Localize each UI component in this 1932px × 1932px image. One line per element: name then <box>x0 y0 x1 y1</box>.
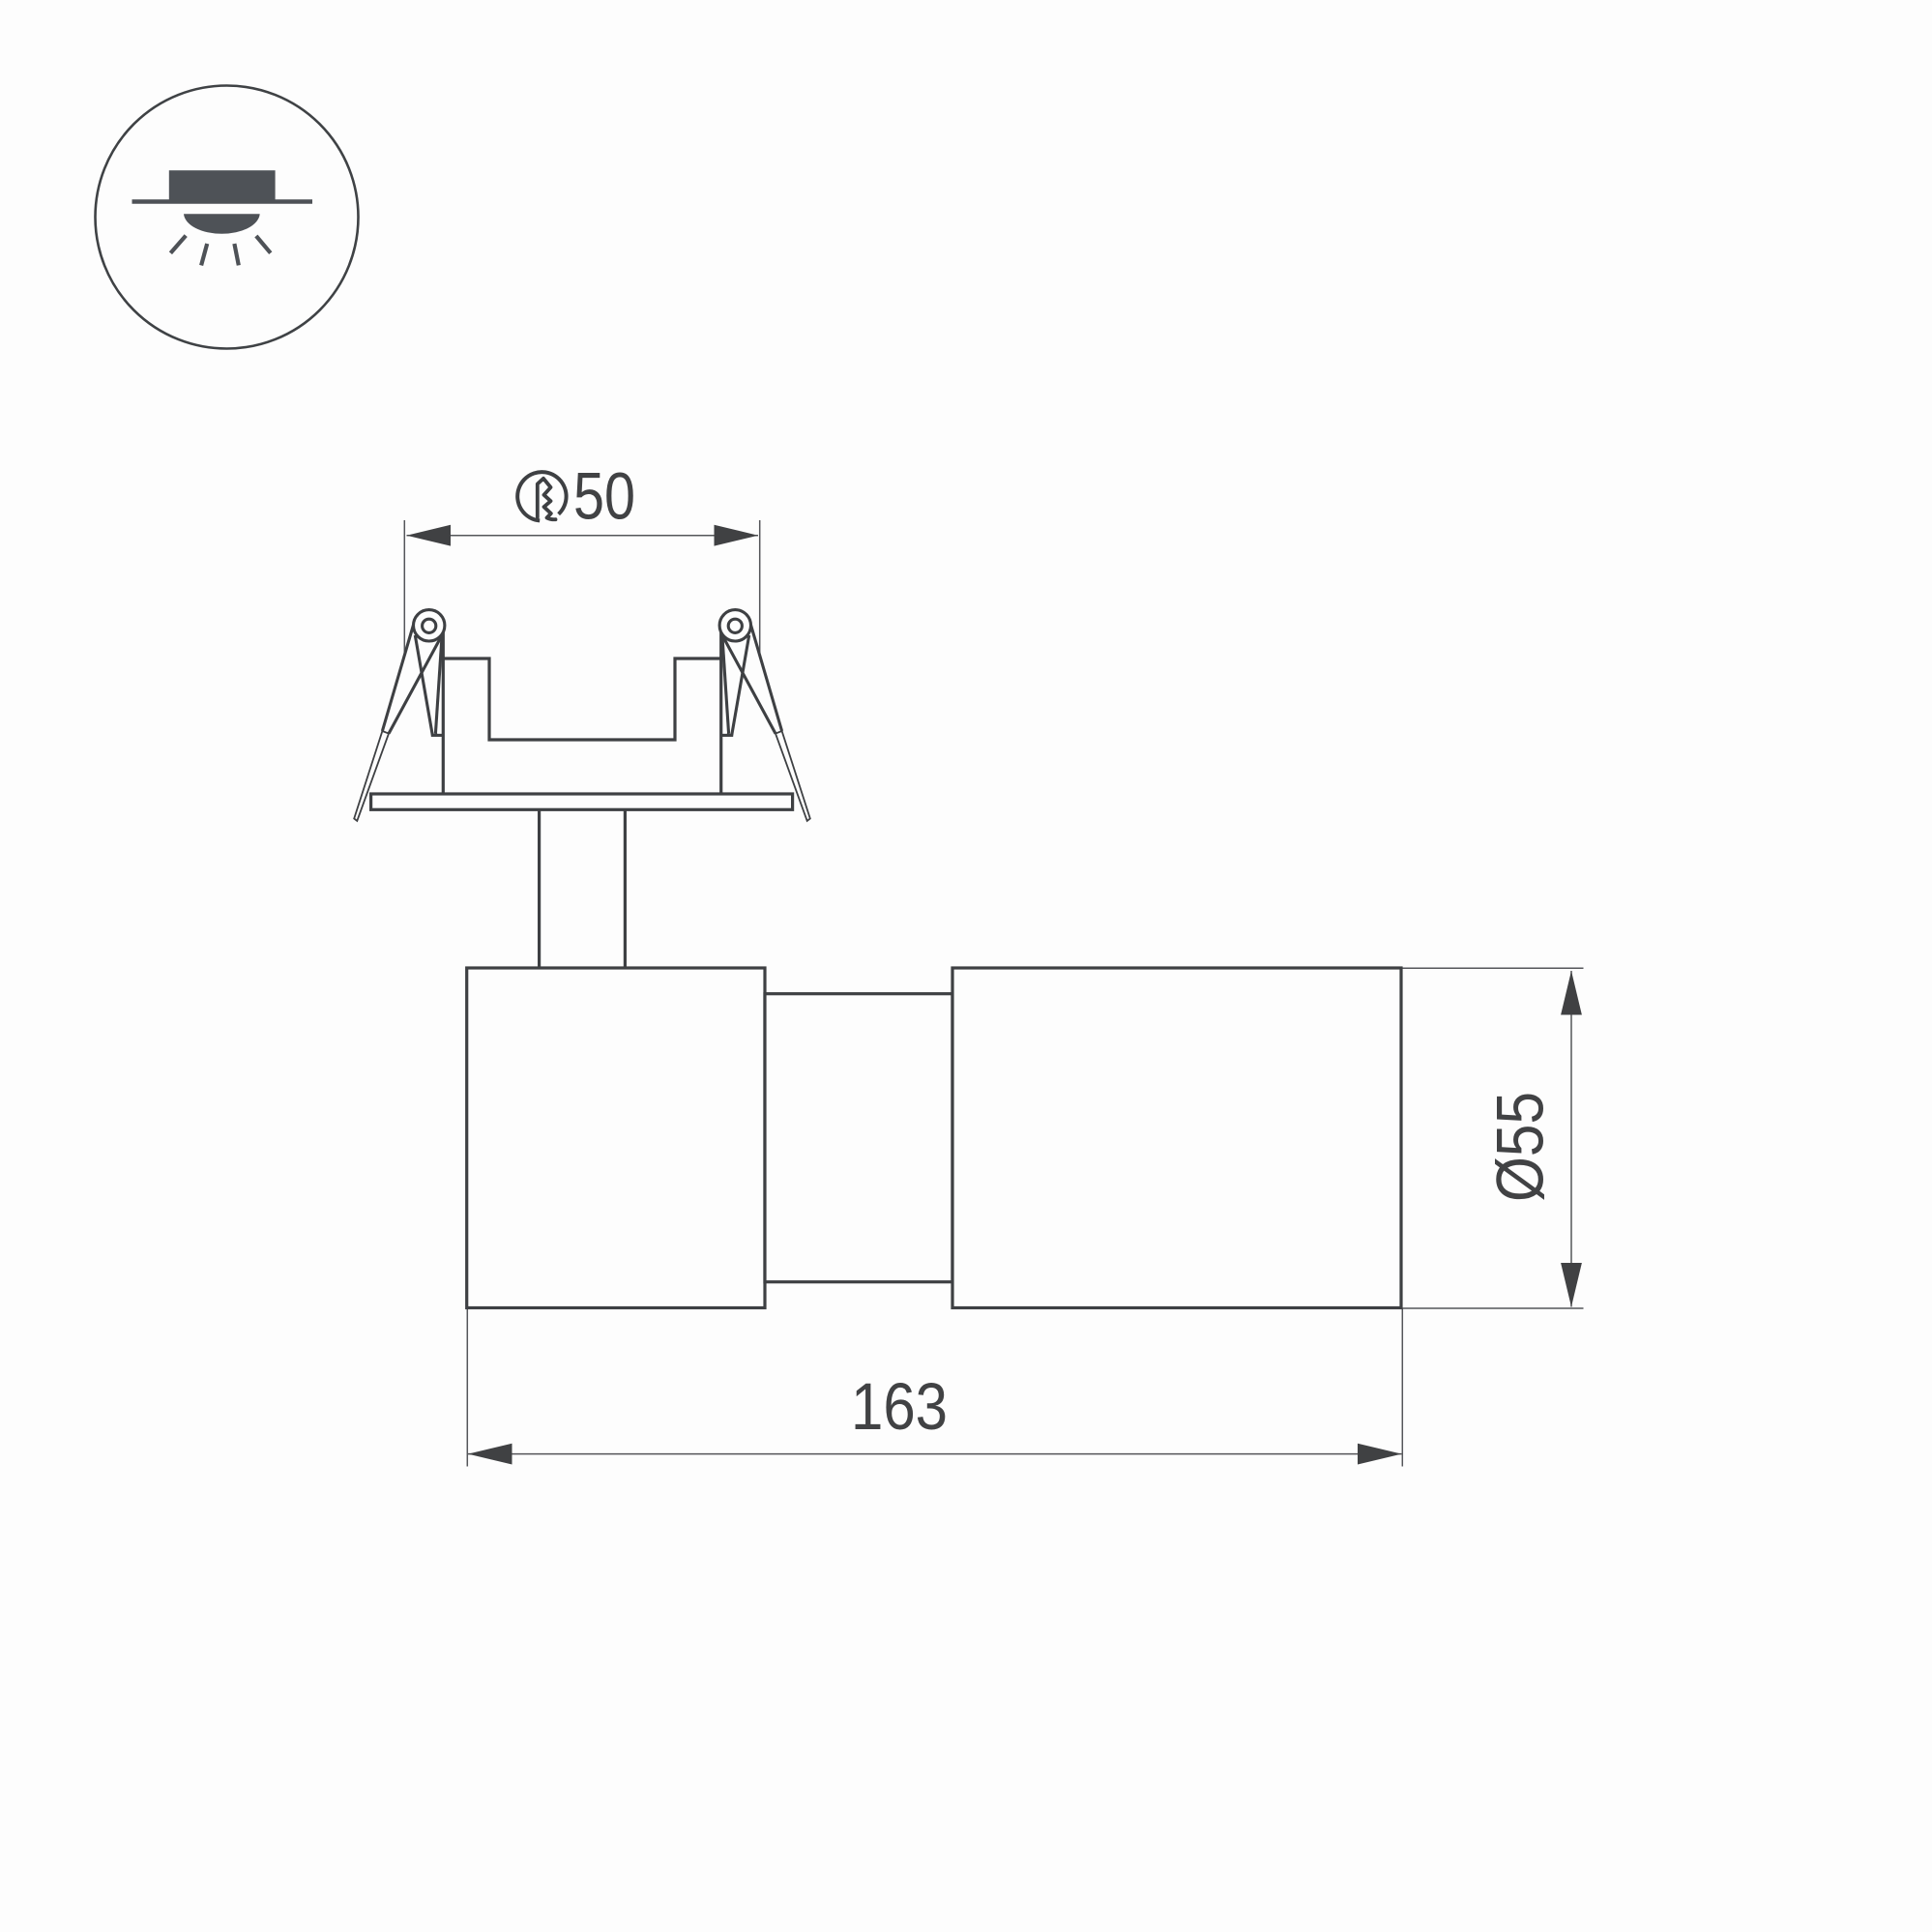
svg-text:50: 50 <box>573 459 635 534</box>
svg-text:Ø55: Ø55 <box>1483 1092 1558 1202</box>
svg-text:163: 163 <box>851 1369 948 1444</box>
